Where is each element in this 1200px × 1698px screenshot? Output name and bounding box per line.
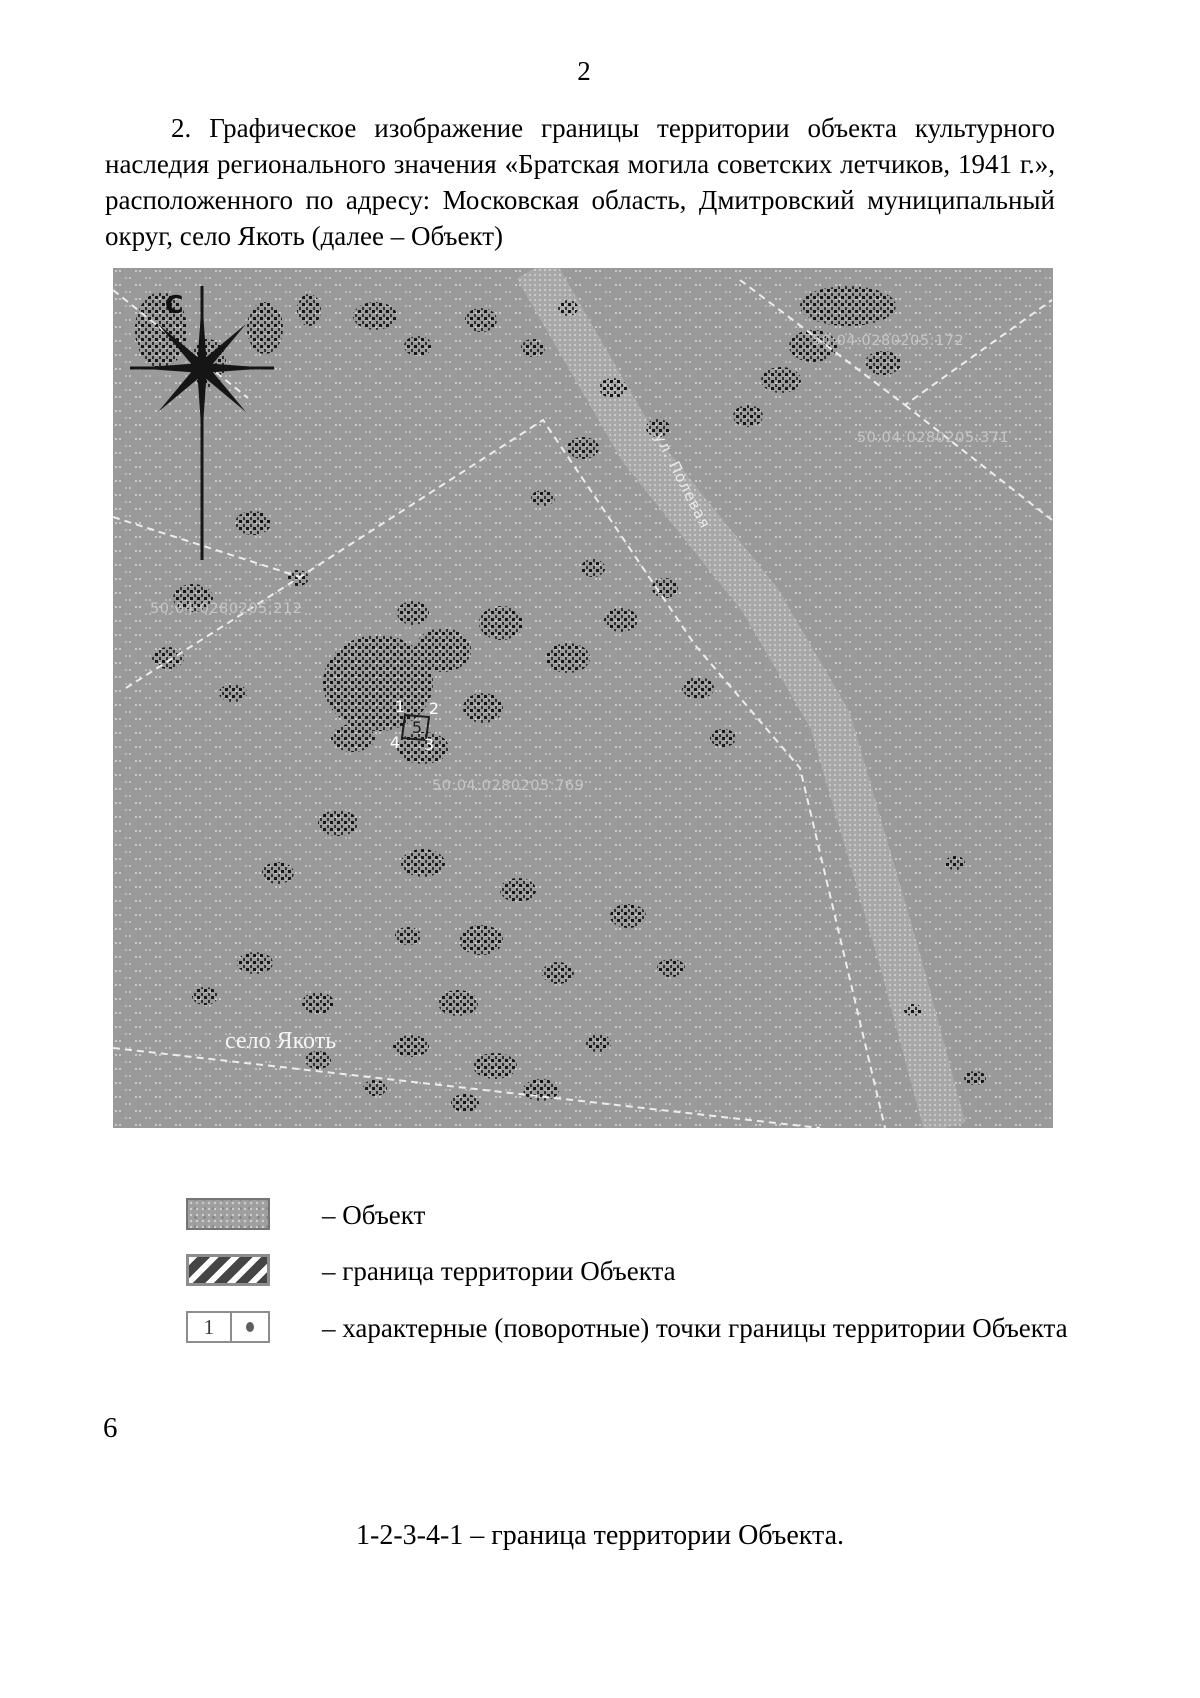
territory-map: С 50:04:0280205:172 50:04:0280205:371 50… (113, 268, 1053, 1128)
legend-label-boundary: – граница территории Объекта (322, 1254, 676, 1288)
legend-swatch-turning-point: 1 (186, 1311, 270, 1343)
stray-page-number: 6 (103, 1412, 118, 1445)
legend-item-turning-points: 1 – характерные (поворотные) точки грани… (0, 1311, 1200, 1345)
point-dot-icon (246, 1322, 254, 1332)
boundary-point-label-2: 2 (429, 699, 439, 718)
boundary-caption: 1-2-3-4-1 – граница территории Объекта. (0, 1520, 1200, 1552)
legend-swatch-point-dot-cell (232, 1313, 268, 1341)
legend-item-object: – Объект (0, 1198, 1200, 1232)
legend-label-turning-points: – характерные (поворотные) точки границы… (322, 1311, 1068, 1345)
legend-swatch-point-number: 1 (188, 1313, 232, 1341)
village-label: село Якоть (225, 1028, 336, 1054)
legend-item-boundary: – граница территории Объекта (0, 1254, 1200, 1288)
boundary-point-label-4: 4 (390, 733, 400, 752)
boundary-point-label-5: 5 (412, 718, 422, 737)
map-image: С 50:04:0280205:172 50:04:0280205:371 50… (113, 268, 1053, 1128)
page-number: 2 (0, 56, 1168, 87)
parcel-label-371: 50:04:0280205:371 (857, 430, 1009, 446)
document-page: 2 2. Графическое изображение границы тер… (0, 0, 1200, 1698)
legend-swatch-boundary-hatch (186, 1254, 270, 1286)
legend-label-object: – Объект (322, 1198, 425, 1232)
compass-north-label: С (165, 290, 183, 319)
parcel-label-769: 50:04:0280205:769 (432, 778, 584, 794)
parcel-label-172: 50:04:0280205:172 (812, 333, 964, 349)
boundary-point-label-3: 3 (424, 735, 434, 754)
body-paragraph: 2. Графическое изображение границы терри… (105, 110, 1055, 254)
legend-swatch-object (186, 1198, 270, 1230)
boundary-point-label-1: 1 (395, 697, 405, 716)
parcel-label-212: 50:04:0280205:212 (150, 601, 302, 617)
